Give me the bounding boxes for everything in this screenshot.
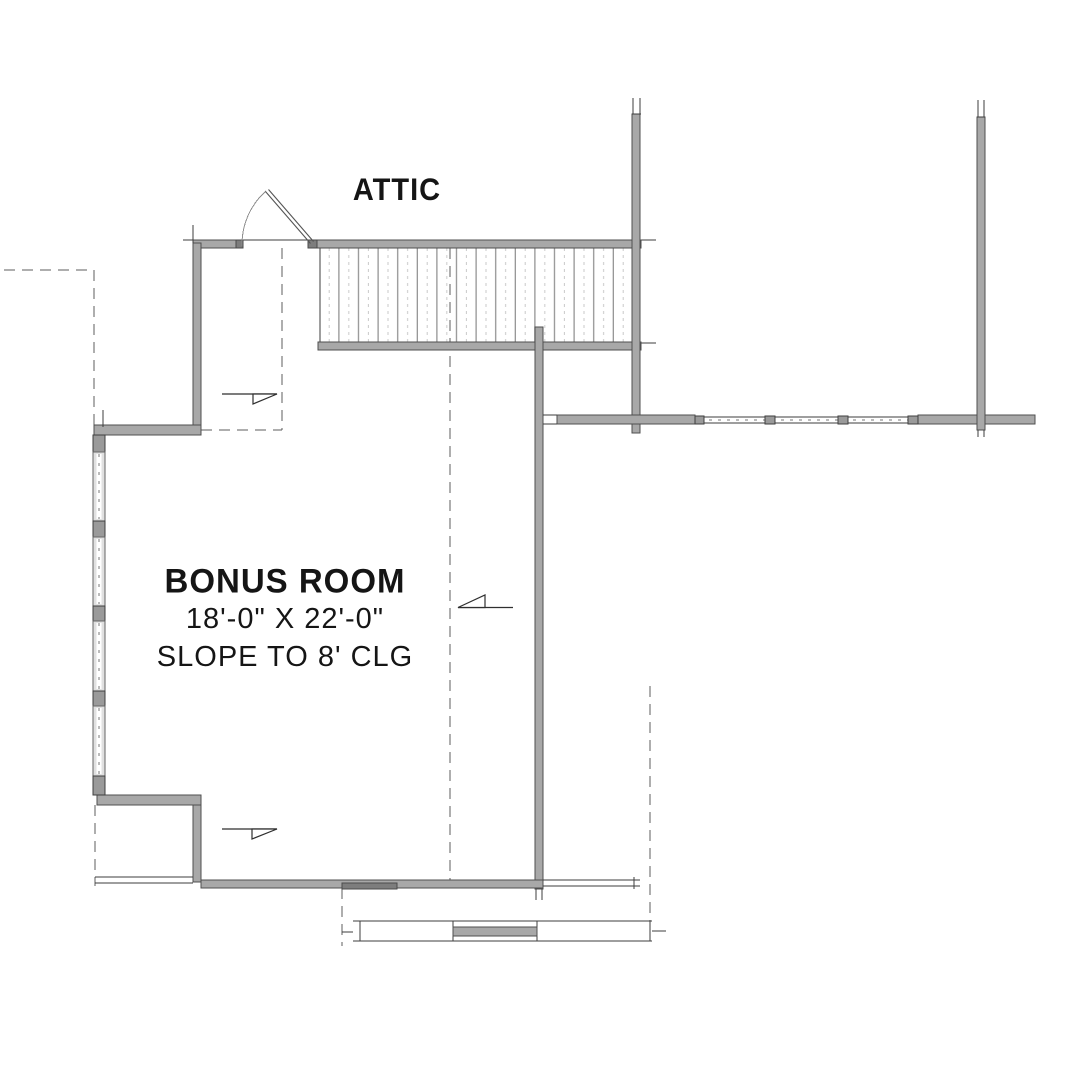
right-wing-window (695, 416, 918, 424)
bonus-room-label: BONUS ROOM (118, 561, 452, 601)
slope-arrow-icon (222, 394, 277, 404)
slope-arrow-icon (222, 829, 277, 839)
walls (94, 114, 1035, 889)
stair-treads (320, 248, 630, 342)
far-right-vertical-wall (977, 117, 985, 430)
lower-wall-segment (453, 927, 537, 936)
staircase (183, 240, 656, 343)
door-leaf (269, 190, 314, 242)
window-mullion (838, 416, 848, 424)
window-post (93, 776, 105, 795)
bonus-room-right-wall (535, 327, 543, 889)
lower-left-vertical-wall (193, 805, 201, 882)
right-wing-wall-segment-2 (918, 415, 977, 424)
window-post (93, 521, 105, 537)
door-jamb-right (308, 240, 317, 248)
window-mullion (765, 416, 775, 424)
stairwell-right-wall (632, 114, 640, 433)
floor-plan-drawing (0, 0, 1078, 1070)
lower-level-outline (342, 921, 666, 941)
door-leaf (266, 192, 311, 244)
window-mullion (908, 416, 918, 424)
window-mullion (695, 416, 704, 424)
stair-bottom-rail-wall (318, 342, 641, 350)
ceiling-slope-label: SLOPE TO 8' CLG (118, 641, 452, 674)
slope-arrow-icon (458, 595, 513, 608)
door-swing-arc (242, 191, 266, 246)
window-post (93, 691, 105, 706)
left-window-wall (93, 435, 105, 795)
right-wing-wall-segment-3 (985, 415, 1035, 424)
left-wing-top-wall (94, 425, 201, 435)
floor-plan-canvas: ATTIC BONUS ROOM 18'-0" X 22'-0" SLOPE T… (0, 0, 1078, 1070)
attic-label: ATTIC (337, 173, 457, 209)
upper-left-vertical-wall (193, 243, 201, 430)
window-post (93, 435, 105, 452)
bottom-wall-dark-segment (342, 883, 397, 889)
room-dimensions-label: 18'-0" X 22'-0" (118, 603, 452, 636)
left-wing-bottom-wall (97, 795, 201, 805)
right-wing-wall-segment-1 (557, 415, 695, 424)
top-wall-right-segment (308, 240, 641, 248)
attic-door (242, 190, 314, 247)
window-post (93, 606, 105, 621)
